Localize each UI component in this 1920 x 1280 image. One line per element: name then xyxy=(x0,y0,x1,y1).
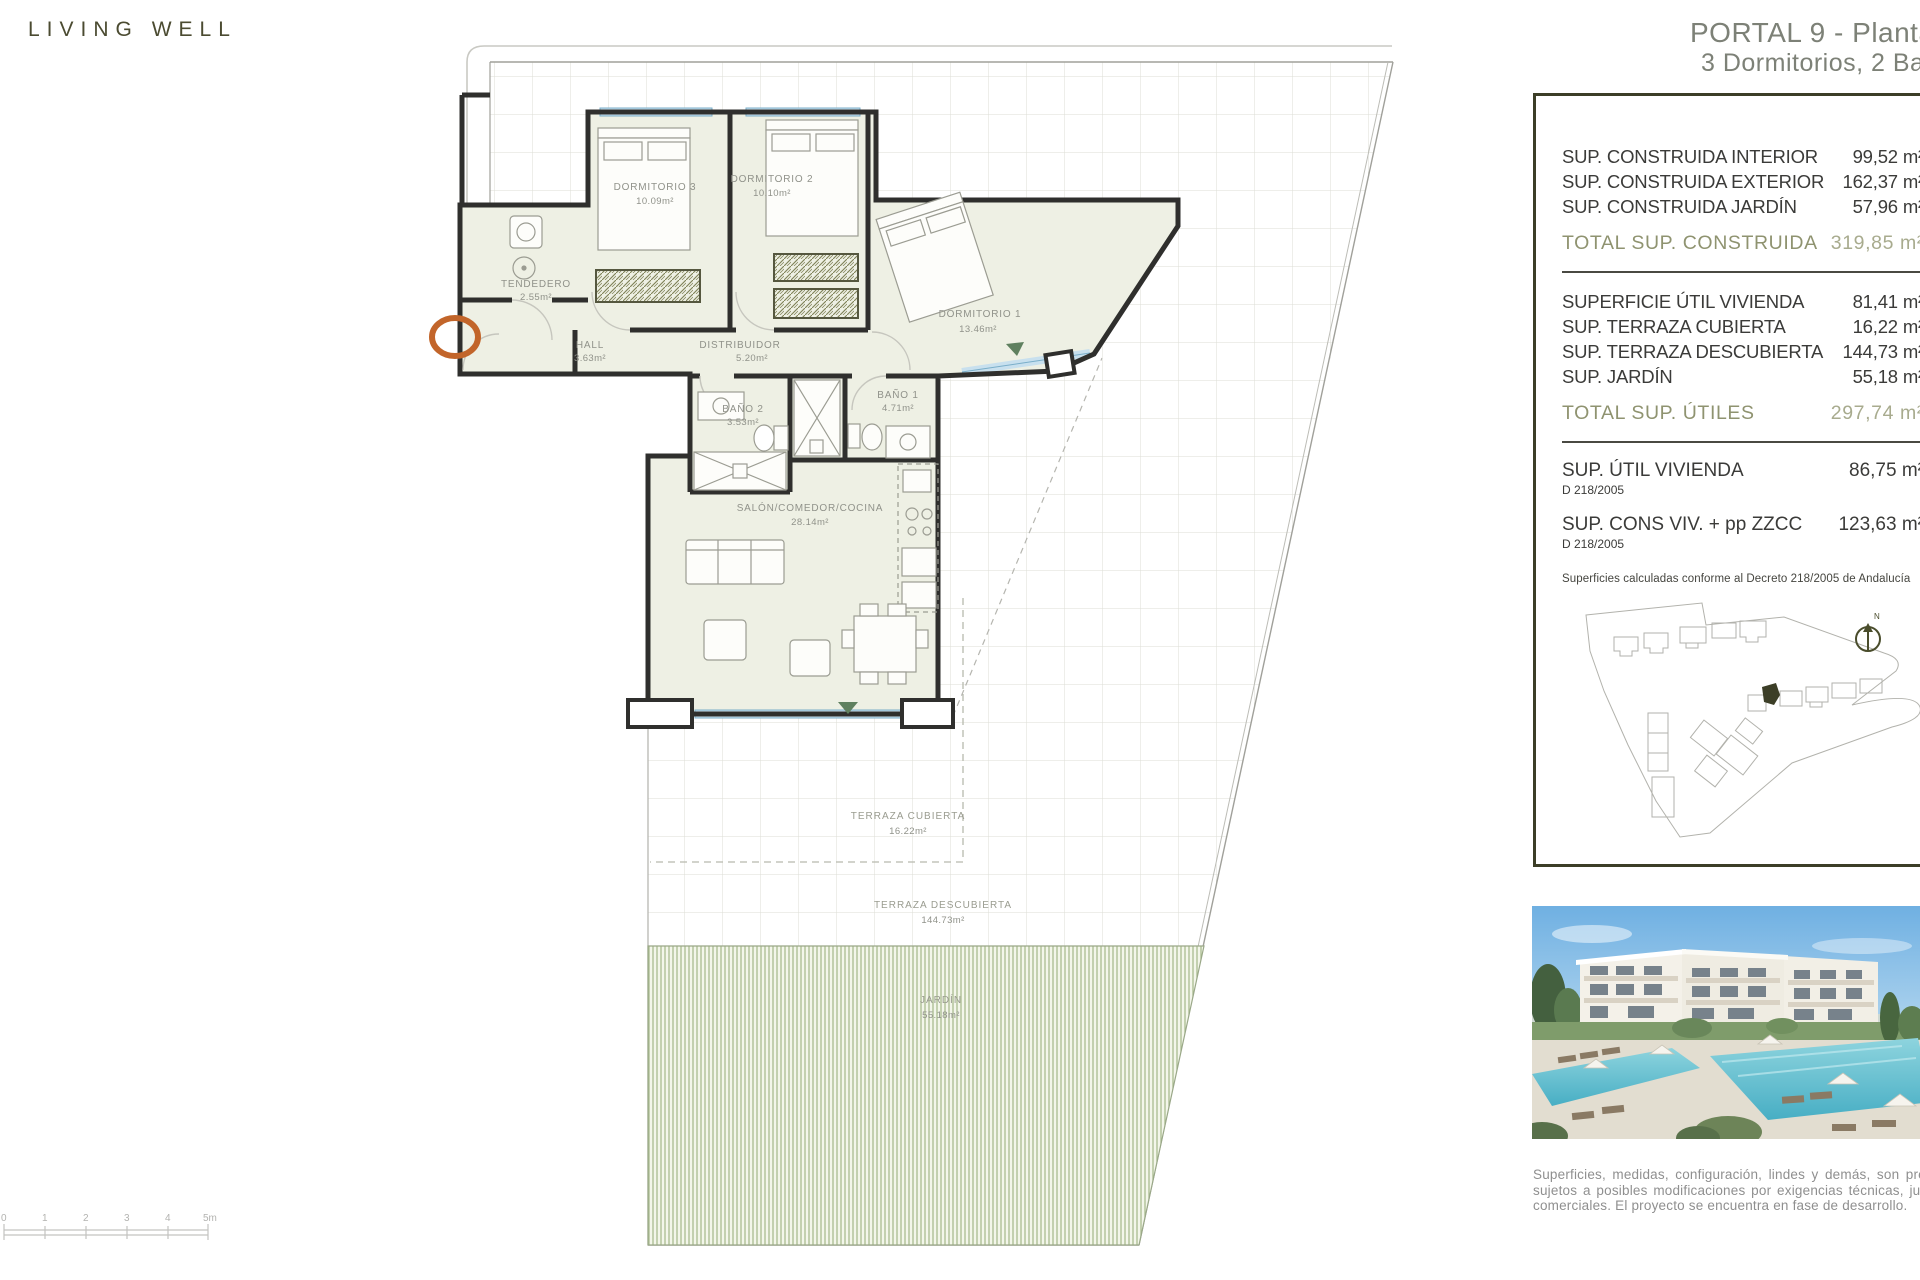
decree-sub: D 218/2005 xyxy=(1562,537,1920,551)
armchair-2 xyxy=(790,640,830,676)
row-value: 162,37 m² xyxy=(1843,169,1920,194)
row-value: 123,63 m² xyxy=(1838,514,1920,536)
wardrobe-dorm2b xyxy=(774,289,858,318)
total-label: TOTAL SUP. ÚTILES xyxy=(1562,398,1755,428)
garden-area xyxy=(648,946,1204,1245)
room-label-dorm3: DORMITORIO 3 xyxy=(614,182,697,193)
north-compass-icon xyxy=(1856,623,1880,651)
label-jardin: JARDÍN xyxy=(920,993,962,1006)
room-area-dorm1: 13.46m² xyxy=(959,324,997,335)
row-value: 144,73 m² xyxy=(1843,339,1920,364)
room-area-distribuidor: 5.20m² xyxy=(736,353,768,364)
room-area-salon: 28.14m² xyxy=(791,517,829,528)
page-title-line1: PORTAL 9 - Planta Baja xyxy=(1690,17,1920,49)
row-value: 55,18 m² xyxy=(1853,364,1920,389)
row-value: 57,96 m² xyxy=(1853,194,1920,219)
table-row: SUPERFICIE ÚTIL VIVIENDA 81,41 m² xyxy=(1562,289,1920,314)
table-row: SUP. CONSTRUIDA JARDÍN 57,96 m² xyxy=(1562,194,1920,219)
total-value: 319,85 m² xyxy=(1831,228,1920,258)
table-row: SUP. JARDÍN 55,18 m² xyxy=(1562,364,1920,389)
table-row: SUP. CONSTRUIDA INTERIOR 99,52 m² xyxy=(1562,144,1920,169)
floorplan-brochure-page: { "brand": { "logo_text": "LIVING WELL" … xyxy=(0,0,1920,1280)
total-value: 297,74 m² xyxy=(1831,398,1920,428)
row-label: SUP. TERRAZA CUBIERTA xyxy=(1562,314,1786,339)
wardrobe-dorm2a xyxy=(774,254,858,281)
room-area-dorm3: 10.09m² xyxy=(636,196,674,207)
brand-logo: LIVING WELL xyxy=(28,18,237,42)
room-area-bano2: 3.53m² xyxy=(727,417,759,428)
north-label: N xyxy=(1874,612,1880,621)
room-label-dorm1: DORMITORIO 1 xyxy=(939,309,1022,320)
decree-note: Superficies calculadas conforme al Decre… xyxy=(1562,573,1920,585)
scale-bar: 0 1 2 3 4 5m xyxy=(1,1213,217,1240)
row-value: 99,52 m² xyxy=(1853,144,1920,169)
scale-label-3: 3 xyxy=(124,1213,130,1224)
row-label: SUP. CONSTRUIDA JARDÍN xyxy=(1562,194,1797,219)
scale-label-4: 4 xyxy=(165,1213,171,1224)
armchair-1 xyxy=(704,620,746,660)
row-label: SUP. ÚTIL VIVIENDA xyxy=(1562,460,1744,482)
row-value: 81,41 m² xyxy=(1853,289,1920,314)
dining-table xyxy=(842,604,928,684)
row-value: 86,75 m² xyxy=(1849,460,1920,482)
decree-sub: D 218/2005 xyxy=(1562,483,1920,497)
area-terraza-descubierta: 144.73m² xyxy=(921,915,964,926)
row-label: SUP. CONSTRUIDA EXTERIOR xyxy=(1562,169,1824,194)
label-terraza-descubierta: TERRAZA DESCUBIERTA xyxy=(874,900,1012,911)
cypress-tree xyxy=(1880,992,1900,1044)
site-buildings-upper xyxy=(1614,621,1766,656)
site-location-plan: N xyxy=(1552,595,1920,857)
row-label: SUPERFICIE ÚTIL VIVIENDA xyxy=(1562,289,1804,314)
room-label-hall: HALL xyxy=(576,340,604,351)
room-label-bano1: BAÑO 1 xyxy=(877,388,918,401)
render-buildings xyxy=(1576,949,1878,1028)
room-area-tendedero: 2.55m² xyxy=(520,292,552,303)
room-area-bano1: 4.71m² xyxy=(882,403,914,414)
page-title-line2: 3 Dormitorios, 2 Baños xyxy=(1701,49,1920,78)
divider xyxy=(1562,271,1920,273)
label-terraza-cubierta: TERRAZA CUBIERTA xyxy=(851,811,966,822)
total-built-row: TOTAL SUP. CONSTRUIDA 319,85 m² xyxy=(1562,228,1920,258)
scale-label-0: 0 xyxy=(1,1213,7,1224)
building-render-photo xyxy=(1532,906,1920,1139)
scale-label-5: 5m xyxy=(203,1213,217,1224)
room-label-dorm2: DORMITORIO 2 xyxy=(731,174,814,185)
scale-label-1: 1 xyxy=(42,1213,48,1224)
surface-summary-panel: SUP. CONSTRUIDA INTERIOR 99,52 m² SUP. C… xyxy=(1533,93,1920,867)
room-area-dorm2: 10.10m² xyxy=(753,188,791,199)
divider xyxy=(1562,441,1920,443)
row-label: SUP. CONS VIV. + pp ZZCC xyxy=(1562,514,1802,536)
decree-row: SUP. ÚTIL VIVIENDA 86,75 m² xyxy=(1562,460,1920,482)
legal-disclaimer: Superficies, medidas, configuración, lin… xyxy=(1533,1167,1920,1214)
table-row: SUP. TERRAZA CUBIERTA 16,22 m² xyxy=(1562,314,1920,339)
room-label-salon: SALÓN/COMEDOR/COCINA xyxy=(737,501,884,514)
room-label-tendedero: TENDEDERO xyxy=(501,279,571,290)
row-label: SUP. CONSTRUIDA INTERIOR xyxy=(1562,144,1818,169)
site-buildings-lower xyxy=(1648,713,1763,817)
area-terraza-cubierta: 16.22m² xyxy=(889,826,927,837)
table-row: SUP. TERRAZA DESCUBIERTA 144,73 m² xyxy=(1562,339,1920,364)
total-label: TOTAL SUP. CONSTRUIDA xyxy=(1562,228,1818,258)
wardrobe-dorm3 xyxy=(596,270,700,302)
row-label: SUP. JARDÍN xyxy=(1562,364,1673,389)
total-useful-row: TOTAL SUP. ÚTILES 297,74 m² xyxy=(1562,398,1920,428)
decree-row: SUP. CONS VIV. + pp ZZCC 123,63 m² xyxy=(1562,514,1920,536)
table-row: SUP. CONSTRUIDA EXTERIOR 162,37 m² xyxy=(1562,169,1920,194)
sofa xyxy=(686,540,784,584)
site-boundary xyxy=(1586,603,1920,837)
scale-label-2: 2 xyxy=(83,1213,89,1224)
room-area-hall: 3.63m² xyxy=(574,353,606,364)
site-highlighted-building xyxy=(1762,683,1780,705)
row-label: SUP. TERRAZA DESCUBIERTA xyxy=(1562,339,1823,364)
room-label-distribuidor: DISTRIBUIDOR xyxy=(699,340,780,351)
room-label-bano2: BAÑO 2 xyxy=(722,402,763,415)
area-jardin: 55.18m² xyxy=(922,1010,960,1021)
row-value: 16,22 m² xyxy=(1853,314,1920,339)
